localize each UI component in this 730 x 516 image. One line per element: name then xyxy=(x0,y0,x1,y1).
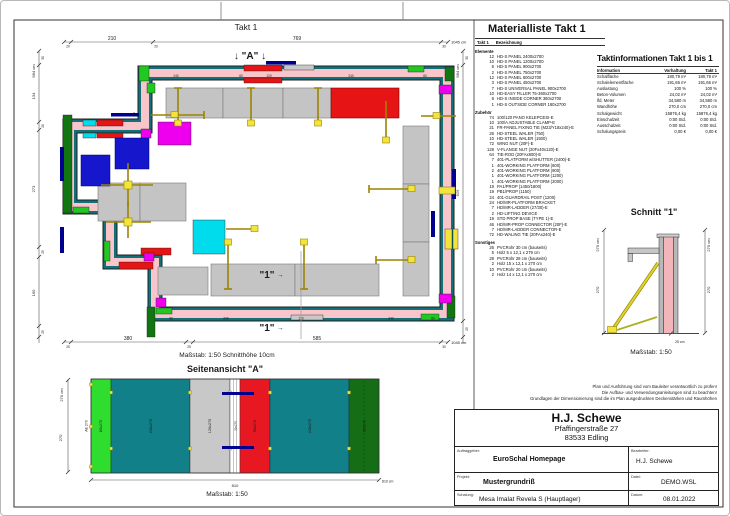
dim-total: 1045 cm xyxy=(451,340,467,345)
material-desc: HD-S OUTSIDE CORNER 180x2700 xyxy=(497,102,566,107)
yellow-filler xyxy=(453,229,458,249)
dim-label: 210 xyxy=(108,36,117,42)
schalung-value: Mesa Imalat Revela S (Hauptlager) xyxy=(479,496,628,503)
dim-label: 30 xyxy=(442,45,446,49)
green-panel xyxy=(104,241,110,261)
svg-text:120: 120 xyxy=(266,74,272,78)
svg-text:→: → xyxy=(277,325,284,332)
plan-dim-right: 684 cm 30 629 25 xyxy=(455,49,469,343)
field-label: Auftraggeber: xyxy=(457,449,480,453)
prop-connector xyxy=(439,187,455,194)
magenta-corner xyxy=(144,253,154,261)
datum-value: 08.01.2022 xyxy=(663,496,718,503)
cyan-panel xyxy=(83,133,96,138)
yellow-filler xyxy=(445,229,452,249)
prop xyxy=(376,256,415,264)
red-platform xyxy=(331,88,399,118)
elevation-title: Seitenansicht "A" xyxy=(187,364,263,374)
svg-text:60: 60 xyxy=(239,74,243,78)
tie-bar xyxy=(452,169,456,199)
material-qty: 2 xyxy=(478,272,494,277)
title-block-row: Auftraggeber: EuroSchal Homepage Bearbei… xyxy=(455,447,718,473)
svg-text:25 cm: 25 cm xyxy=(675,340,685,344)
svg-text:270: 270 xyxy=(595,286,600,293)
material-list-header: Takt 1 Bezeichnung xyxy=(475,38,605,46)
green-end-panel xyxy=(147,307,155,337)
filler-panel xyxy=(284,65,314,70)
dim-label: 20 xyxy=(66,45,70,49)
material-group: Sonstiges 26 PVCRohr 30 cm (bauseits) 5 … xyxy=(475,240,625,277)
svg-text:270 cm: 270 cm xyxy=(706,238,711,252)
section-title: Schnitt "1" xyxy=(631,207,678,217)
dim-label: 20 xyxy=(154,45,158,49)
material-desc: HD-WALING TIE (20FAx240)-E xyxy=(497,232,555,237)
dim-label: 30 xyxy=(442,345,446,349)
svg-text:270 cm: 270 cm xyxy=(59,388,64,402)
tie-bar xyxy=(222,392,254,395)
svg-text:60: 60 xyxy=(431,317,435,321)
plan-dim-left: 684 cm 30 134 20 273 25 160 25 xyxy=(31,49,45,343)
green-panel xyxy=(73,207,89,213)
green-panel xyxy=(445,67,454,81)
viewport-title: Takt 1 xyxy=(235,22,258,32)
magenta-corner xyxy=(141,129,151,138)
blue-panel xyxy=(115,138,149,169)
dim-total: 1045 cm xyxy=(451,40,467,45)
drawing-sheet: Takt 1 210 769 20 20 30 1045 cm ↓ "A" ↓ … xyxy=(0,0,730,516)
blue-panel xyxy=(81,155,110,186)
svg-text:120x270: 120x270 xyxy=(208,419,212,434)
dim-label: 585 xyxy=(313,336,322,342)
takt-info-header: Information Vorhaltung Takt 1 xyxy=(597,66,719,74)
svg-text:"1": "1" xyxy=(259,270,274,281)
svg-text:90x270: 90x270 xyxy=(253,420,257,432)
dim-label: 25 xyxy=(187,345,191,349)
prop-base xyxy=(608,327,617,333)
field-label: Datei: xyxy=(631,475,641,479)
bearbeiter-value: H.J. Schewe xyxy=(636,458,718,465)
wall-core xyxy=(664,237,674,334)
svg-text:270: 270 xyxy=(58,434,63,441)
dim-label: 769 xyxy=(293,36,302,42)
svg-text:240: 240 xyxy=(348,74,354,78)
tie-bar xyxy=(222,446,254,449)
material-desc: Holz 14 x 12,1 x 270 cm xyxy=(497,272,542,277)
dim-label: 273 xyxy=(31,185,36,192)
datei-value: DEMO.WSL xyxy=(661,479,718,486)
svg-text:60x270: 60x270 xyxy=(99,420,103,432)
form-panel xyxy=(659,237,664,334)
material-qty: 72 xyxy=(478,232,494,237)
elevation-scale: Maßstab: 1:50 xyxy=(206,491,248,498)
dim-total: 684 cm xyxy=(455,64,460,78)
section-scale: Maßstab: 1:50 xyxy=(630,349,672,356)
title-block-row: Schalung: Mesa Imalat Revela S (Hauptlag… xyxy=(455,491,718,506)
platform-bracket xyxy=(628,248,659,254)
section-marker-a: ↓ "A" ↓ xyxy=(234,51,266,62)
elevation-view: Seitenansicht "A" 60x270 240x270 120x270… xyxy=(58,364,394,498)
takt-info-panel: Taktinformationen Takt 1 bis 1 Informati… xyxy=(597,53,719,135)
dim-label: 25 xyxy=(41,330,45,334)
company-address2: 83533 Edling xyxy=(455,434,718,443)
dim-label: 25 xyxy=(41,250,45,254)
field-label: Datum: xyxy=(631,493,643,497)
title-block-row: Projekt: Mustergrundriß Datei: DEMO.WSL xyxy=(455,473,718,491)
title-block-header: H.J. Schewe Pfaffingerstraße 27 83533 Ed… xyxy=(455,410,718,447)
dim-total: 684 cm xyxy=(31,64,36,78)
projekt-value: Mustergrundriß xyxy=(483,479,628,486)
green-panel xyxy=(147,83,155,93)
title-block: H.J. Schewe Pfaffingerstraße 27 83533 Ed… xyxy=(454,409,719,506)
svg-text:"1": "1" xyxy=(259,323,274,334)
green-end-panel xyxy=(63,115,72,213)
material-row: 72 HD-WALING TIE (20FAx240)-E xyxy=(475,232,625,237)
takt-info-title: Taktinformationen Takt 1 bis 1 xyxy=(597,53,719,63)
svg-text:60: 60 xyxy=(169,317,173,321)
red-panel xyxy=(119,262,153,269)
material-qty: 1 xyxy=(478,102,494,107)
svg-text:30x270: 30x270 xyxy=(234,421,238,431)
red-panel xyxy=(97,133,123,138)
tie-bar xyxy=(266,61,296,65)
material-row: 2 Holz 14 x 12,1 x 270 cm xyxy=(475,272,625,277)
dim-label: 20 xyxy=(41,124,45,128)
field-label: Schalung: xyxy=(457,493,474,497)
cyan-panel xyxy=(83,120,96,126)
dim-label: 30 xyxy=(41,56,45,60)
magenta-corner xyxy=(439,294,452,303)
field-label: Bearbeiter: xyxy=(631,449,650,453)
dim-label: 25 xyxy=(465,327,469,331)
green-panel xyxy=(421,314,439,320)
svg-text:60: 60 xyxy=(423,74,427,78)
auftraggeber-value: EuroSchal Homepage xyxy=(493,456,628,463)
svg-text:810: 810 xyxy=(232,483,239,488)
dim-label: 134 xyxy=(31,92,36,99)
filler-panel xyxy=(291,315,323,320)
edge-label: AE 270 xyxy=(85,420,89,432)
dim-label: 160 xyxy=(31,289,36,296)
takt-info-rows: Schalfläche 180,79 m² 180,79 m² Schalele… xyxy=(597,74,719,135)
green-panel xyxy=(156,308,172,314)
dim-label: 25 xyxy=(66,345,70,349)
notice-text: Plan und Ausführung sind vom Bauleiter v… xyxy=(421,384,717,402)
dim-label: 30 xyxy=(465,56,469,60)
dim-label: 380 xyxy=(124,336,133,342)
svg-text:→: → xyxy=(277,272,284,279)
tie-bar xyxy=(60,147,64,181)
red-panel xyxy=(97,120,123,126)
plan-scale-note: Maßstab: 1:50 Schnitthöhe 10cm xyxy=(179,352,274,359)
tie-bar xyxy=(60,227,64,253)
plan-dim-top: 210 769 20 20 30 1045 cm xyxy=(62,36,467,49)
svg-text:240x270: 240x270 xyxy=(308,419,312,434)
svg-text:90x270: 90x270 xyxy=(363,420,367,432)
plan-dim-bottom: 380 585 25 25 30 1045 cm xyxy=(62,336,467,349)
svg-text:240: 240 xyxy=(173,74,179,78)
svg-text:240x270: 240x270 xyxy=(149,419,153,434)
tie-bar xyxy=(431,211,435,237)
field-label: Projekt: xyxy=(457,475,470,479)
svg-text:240: 240 xyxy=(223,317,229,321)
svg-text:270: 270 xyxy=(706,286,711,293)
magenta-corner xyxy=(156,298,166,307)
material-list-title: Materialliste Takt 1 xyxy=(488,23,625,35)
cyan-platform xyxy=(193,220,225,254)
svg-text:810 cm: 810 cm xyxy=(382,480,394,484)
red-panel xyxy=(244,78,282,83)
prop xyxy=(226,226,258,232)
magenta-corner xyxy=(439,85,452,94)
red-panel xyxy=(244,65,282,71)
takt-info-row: Schalungspreis 0,00 € 0,00 € xyxy=(597,129,719,135)
svg-text:240: 240 xyxy=(388,317,394,321)
green-panel xyxy=(139,66,149,81)
form-panel xyxy=(674,237,679,334)
green-panel xyxy=(408,66,424,72)
kicker-brace xyxy=(617,317,657,330)
svg-text:14: 14 xyxy=(132,112,136,116)
